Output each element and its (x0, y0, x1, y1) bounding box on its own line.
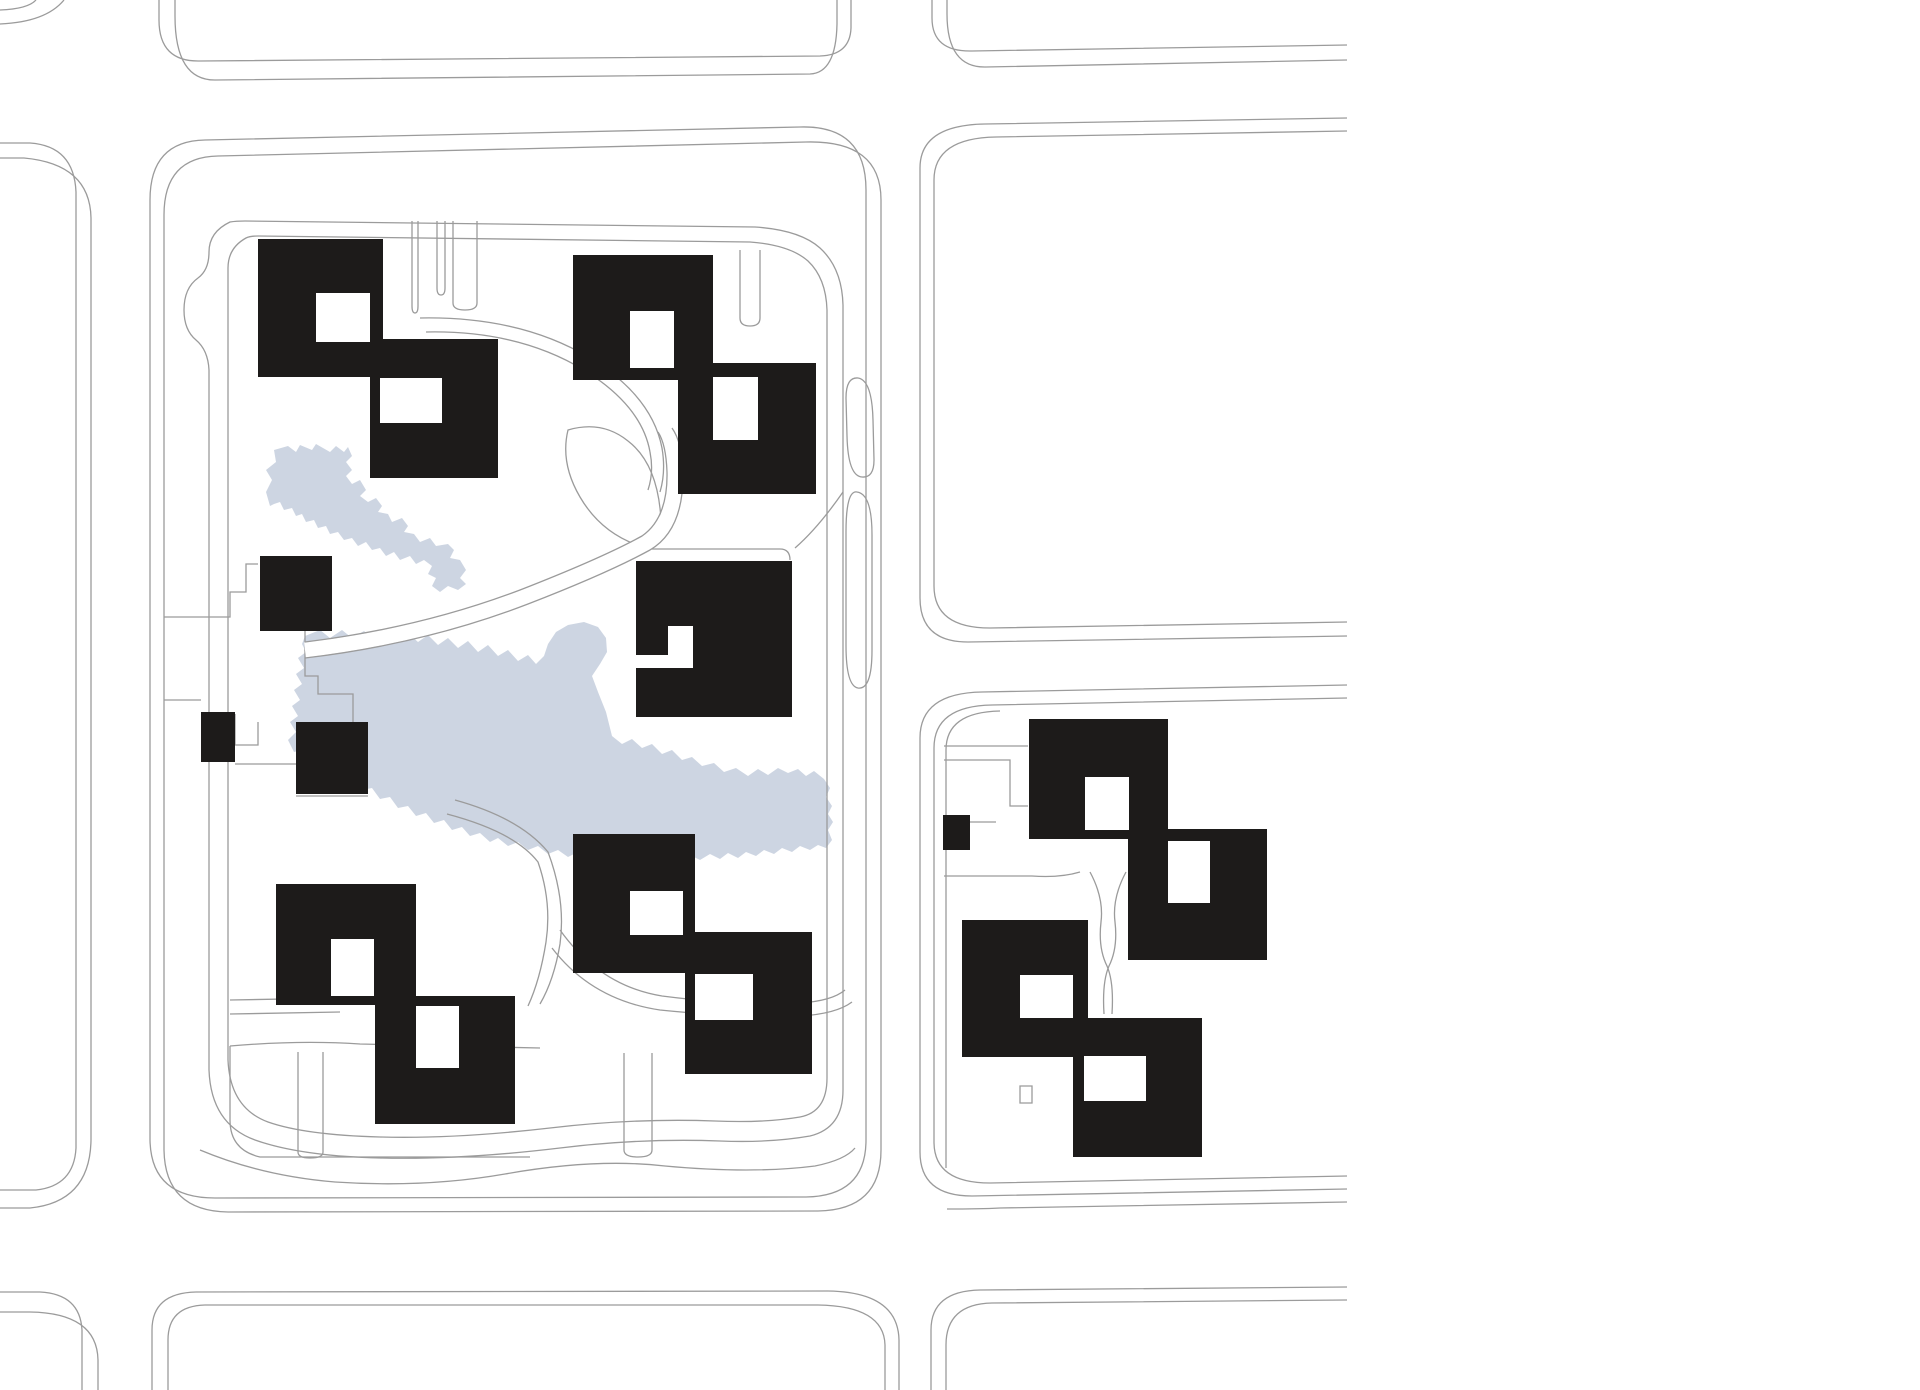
annex-square-3-mass-1 (296, 722, 368, 794)
building-c-center-courtyard-notch-2 (636, 655, 668, 668)
annex-square-1-mass-1 (260, 556, 332, 631)
building-b-north-courtyard-notch-1 (630, 311, 674, 368)
building-e-south-courtyard-notch-2 (695, 974, 753, 1020)
site-plan-canvas (0, 0, 1920, 1390)
building-h-east-lower-courtyard-notch-1 (1020, 975, 1073, 1018)
annex-square-2-mass-1 (201, 712, 235, 762)
building-g-east-upper-courtyard-notch-2 (1168, 841, 1210, 903)
building-h-east-lower-courtyard-notch-2 (1084, 1056, 1146, 1101)
site-plan-drawing (0, 0, 1920, 1390)
building-d-southwest-courtyard-notch-2 (416, 1006, 459, 1068)
building-g-east-upper-courtyard-notch-1 (1085, 777, 1129, 830)
plan-background (0, 0, 1920, 1390)
building-a-northwest-courtyard-notch-1 (316, 293, 370, 342)
building-b-north-courtyard-notch-2 (713, 377, 758, 440)
building-c-center-courtyard-notch-1 (668, 626, 693, 668)
building-a-northwest-courtyard-notch-2 (380, 378, 442, 423)
building-c-center-mass-1 (636, 561, 792, 717)
building-e-south-courtyard-notch-1 (630, 891, 683, 935)
building-d-southwest-courtyard-notch-1 (331, 939, 374, 996)
annex-square-4-east-mass-1 (943, 815, 970, 850)
